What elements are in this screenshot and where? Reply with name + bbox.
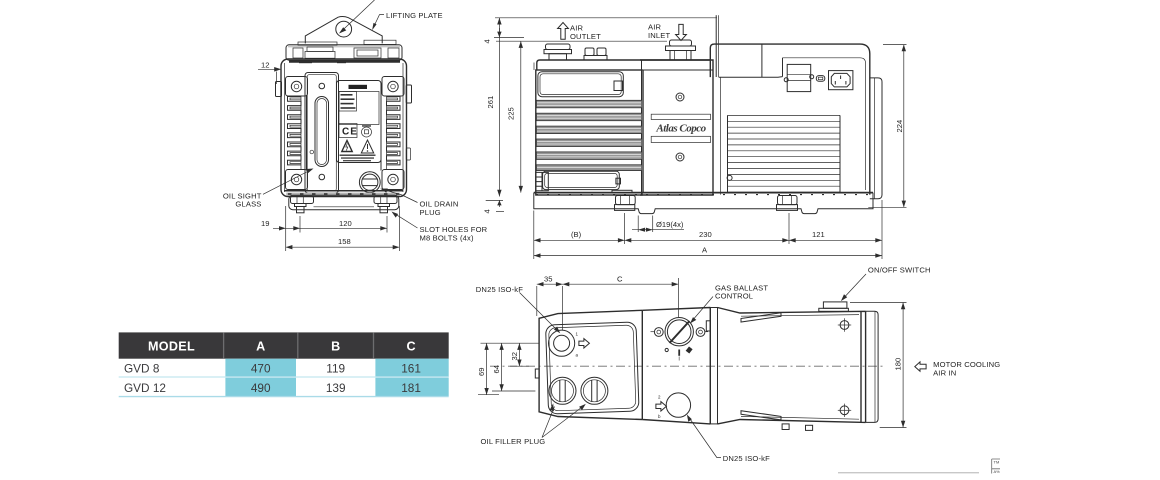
svg-text:139: 139 xyxy=(326,381,346,395)
svg-text:INLET: INLET xyxy=(648,31,670,40)
svg-text:225: 225 xyxy=(507,107,516,120)
svg-text:TM: TM xyxy=(994,460,1000,465)
svg-text:230: 230 xyxy=(699,230,712,239)
svg-text:OIL FILLER PLUG: OIL FILLER PLUG xyxy=(481,437,546,446)
svg-text:470: 470 xyxy=(251,362,271,376)
svg-text:LIFTING PLATE: LIFTING PLATE xyxy=(386,11,443,20)
svg-text:GVD 8: GVD 8 xyxy=(124,362,160,376)
svg-text:121: 121 xyxy=(812,230,825,239)
svg-text:Ø19(4x): Ø19(4x) xyxy=(656,220,684,229)
svg-text:ON/OFF SWITCH: ON/OFF SWITCH xyxy=(868,266,931,275)
svg-text:119: 119 xyxy=(326,362,345,376)
svg-text:A%: A% xyxy=(994,469,1001,474)
svg-text:4: 4 xyxy=(483,39,492,43)
svg-text:AIR IN: AIR IN xyxy=(933,369,956,378)
svg-text:DN25 ISO-kF: DN25 ISO-kF xyxy=(723,454,770,463)
svg-text:64: 64 xyxy=(492,365,501,373)
svg-text:Atlas Copco: Atlas Copco xyxy=(655,123,706,135)
svg-text:PLUG: PLUG xyxy=(420,208,441,217)
svg-text:OUTLET: OUTLET xyxy=(570,32,601,41)
svg-text:261: 261 xyxy=(486,96,495,109)
svg-text:CONTROL: CONTROL xyxy=(715,292,753,301)
svg-text:M8 BOLTS (4x): M8 BOLTS (4x) xyxy=(420,233,474,242)
svg-text:19: 19 xyxy=(261,219,269,228)
svg-text:224: 224 xyxy=(895,120,904,133)
svg-text:MODEL: MODEL xyxy=(148,339,195,353)
svg-text:DN25 ISO-kF: DN25 ISO-kF xyxy=(476,285,523,294)
svg-text:12: 12 xyxy=(261,61,269,70)
svg-text:C: C xyxy=(617,275,623,284)
svg-text:(B): (B) xyxy=(571,230,582,239)
svg-text:B: B xyxy=(331,339,340,353)
svg-text:181: 181 xyxy=(401,381,421,395)
svg-text:69: 69 xyxy=(477,368,486,376)
svg-text:GLASS: GLASS xyxy=(235,199,261,208)
svg-text:CE: CE xyxy=(342,127,358,138)
svg-text:4: 4 xyxy=(483,209,492,213)
svg-text:158: 158 xyxy=(338,237,351,246)
svg-text:490: 490 xyxy=(251,381,271,395)
svg-text:32: 32 xyxy=(510,352,519,360)
svg-text:35: 35 xyxy=(544,275,552,284)
svg-text:120: 120 xyxy=(339,219,352,228)
svg-text:GVD 12: GVD 12 xyxy=(124,381,166,395)
svg-text:180: 180 xyxy=(893,358,902,371)
svg-text:A: A xyxy=(256,339,265,353)
svg-text:161: 161 xyxy=(401,362,421,376)
svg-text:C: C xyxy=(407,339,416,353)
